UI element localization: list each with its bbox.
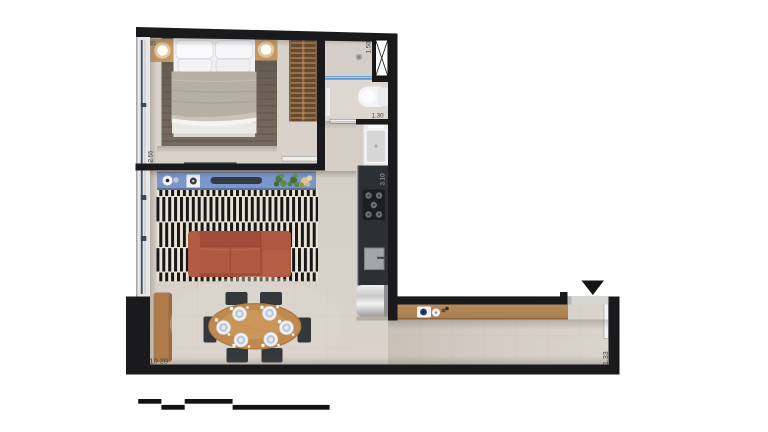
svg-text:1.33: 1.33 [603, 351, 610, 365]
svg-text:2.55: 2.55 [148, 150, 155, 163]
svg-text:3.10: 3.10 [380, 173, 387, 186]
svg-text:10.20: 10.20 [150, 357, 169, 366]
svg-text:1.30: 1.30 [372, 113, 385, 120]
svg-text:1.50: 1.50 [366, 41, 373, 54]
